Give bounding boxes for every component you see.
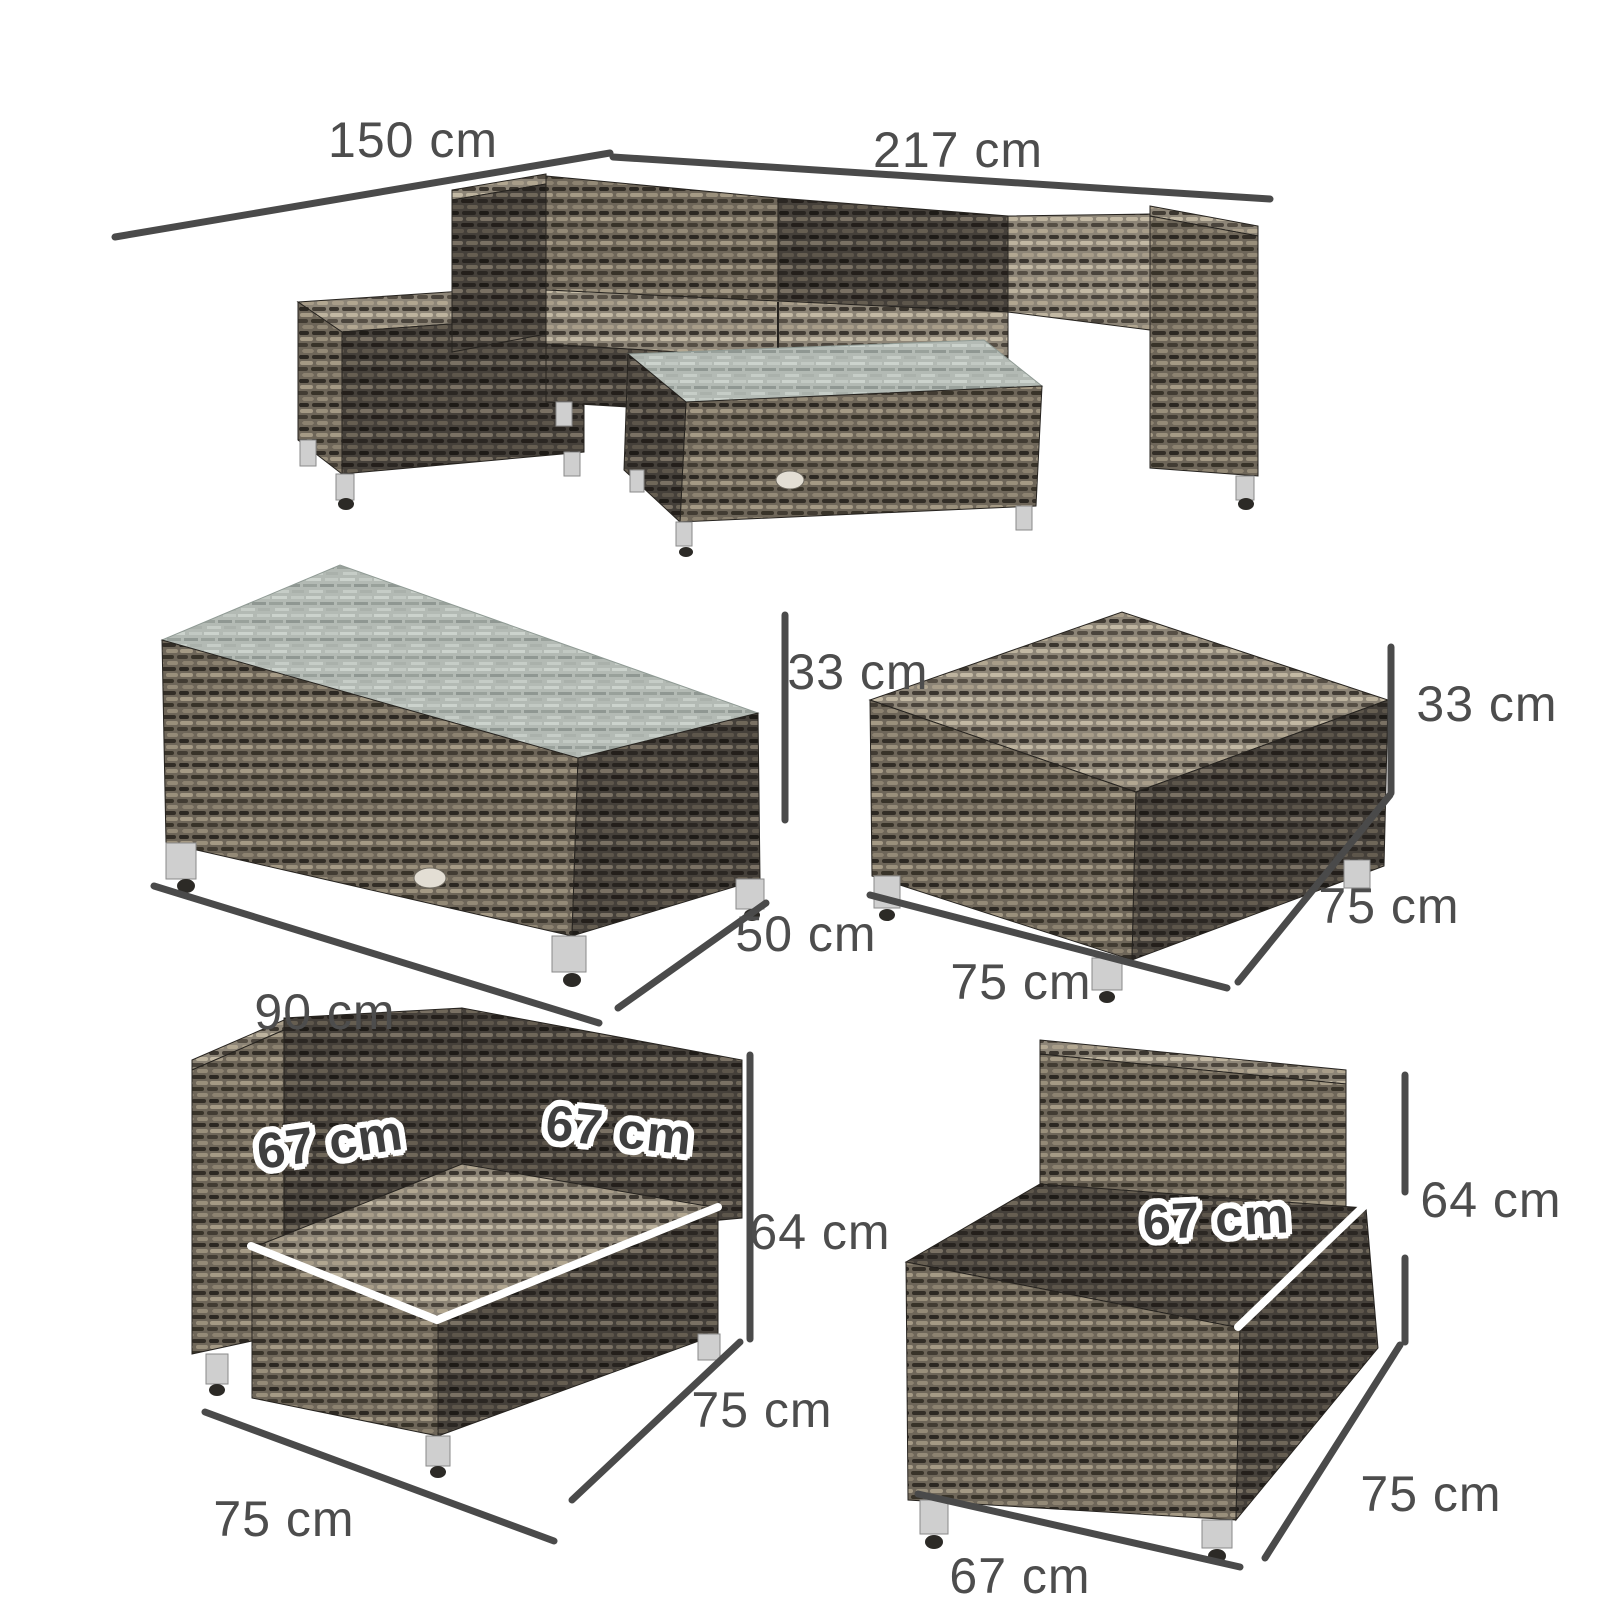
caster-wheel [879,909,895,921]
sofa-set-illustration [298,174,1258,557]
ottoman-height-label: 33 cm [1416,679,1557,729]
sofa-width-label: 217 cm [873,125,1043,175]
corner-chair-depth-label: 75 cm [691,1385,832,1435]
caster-wheel [1099,991,1115,1003]
sofa-back-corner [1008,214,1150,330]
coffee-table-height-label: 33 cm [787,647,928,697]
caster-wheel [209,1384,225,1396]
armless-chair-depth-label: 75 cm [1360,1469,1501,1519]
product-dimension-diagram: 150 cm 217 cm 33 cm 50 cm 90 cm 33 cm 75… [0,0,1600,1600]
caster-wheel [679,547,693,557]
corner-chair-height-label: 64 cm [749,1207,890,1257]
corner-chair-illustration [192,1008,742,1478]
ottoman-illustration [870,612,1388,1003]
sofa-depth-label: 150 cm [328,115,498,165]
set-table-logo [776,471,804,489]
armless-chair-height-label: 64 cm [1420,1175,1561,1225]
ottoman-width-label: 75 cm [950,957,1091,1007]
corner-chair-width-label: 75 cm [213,1494,354,1544]
furniture-illustration-canvas [0,0,1600,1600]
caster-wheel [430,1466,446,1478]
coffee-table-illustration [162,565,764,987]
sofa-left-arm-face [452,184,546,352]
sofa-right-arm-face [1150,216,1258,476]
ottoman-depth-label: 75 cm [1318,881,1459,931]
armless-chair-illustration [906,1040,1378,1563]
table-logo [414,868,446,888]
caster-wheel [563,973,581,987]
armless-chair-seat-width-label: 67 cm [1141,1190,1290,1248]
sofa-back-left [546,176,778,302]
caster-wheel [338,498,354,510]
coffee-table-depth-label: 50 cm [735,909,876,959]
sofa-back-right [778,198,1008,312]
armless-chair-width-label: 67 cm [949,1551,1090,1600]
caster-wheel [1238,498,1254,510]
coffee-table-width-label: 90 cm [254,987,395,1037]
set-table-front-face [680,386,1042,522]
caster-wheel [925,1535,943,1549]
